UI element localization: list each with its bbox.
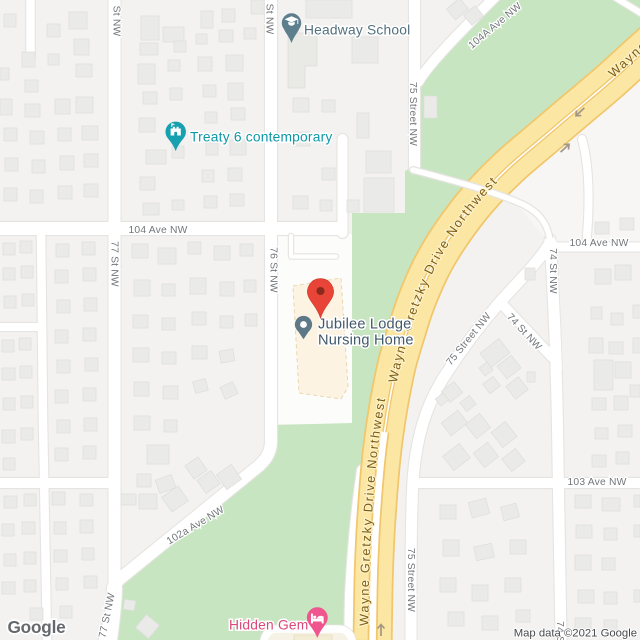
svg-text:Nursing Home: Nursing Home (318, 333, 414, 349)
svg-text:77 St NW: 77 St NW (109, 241, 120, 287)
svg-text:Jubilee Lodge: Jubilee Lodge (318, 317, 411, 333)
svg-text:75 Street NW: 75 Street NW (405, 548, 416, 612)
svg-text:104 Ave NW: 104 Ave NW (569, 238, 628, 249)
svg-text:Google: Google (8, 617, 66, 637)
svg-text:Headway School: Headway School (304, 23, 410, 38)
svg-text:St NW: St NW (111, 6, 122, 37)
svg-text:76 St NW: 76 St NW (268, 247, 279, 293)
svg-text:Map data ©2021 Google: Map data ©2021 Google (514, 628, 637, 640)
svg-text:Treaty 6 contemporary: Treaty 6 contemporary (190, 130, 332, 145)
svg-text:74 St NW: 74 St NW (547, 248, 558, 294)
svg-text:Hidden Gem: Hidden Gem (229, 618, 308, 633)
svg-text:104 Ave NW: 104 Ave NW (128, 225, 187, 236)
svg-text:103 Ave NW: 103 Ave NW (567, 477, 626, 488)
svg-text:St NW: St NW (264, 4, 275, 35)
svg-text:75 Street NW: 75 Street NW (407, 82, 418, 146)
